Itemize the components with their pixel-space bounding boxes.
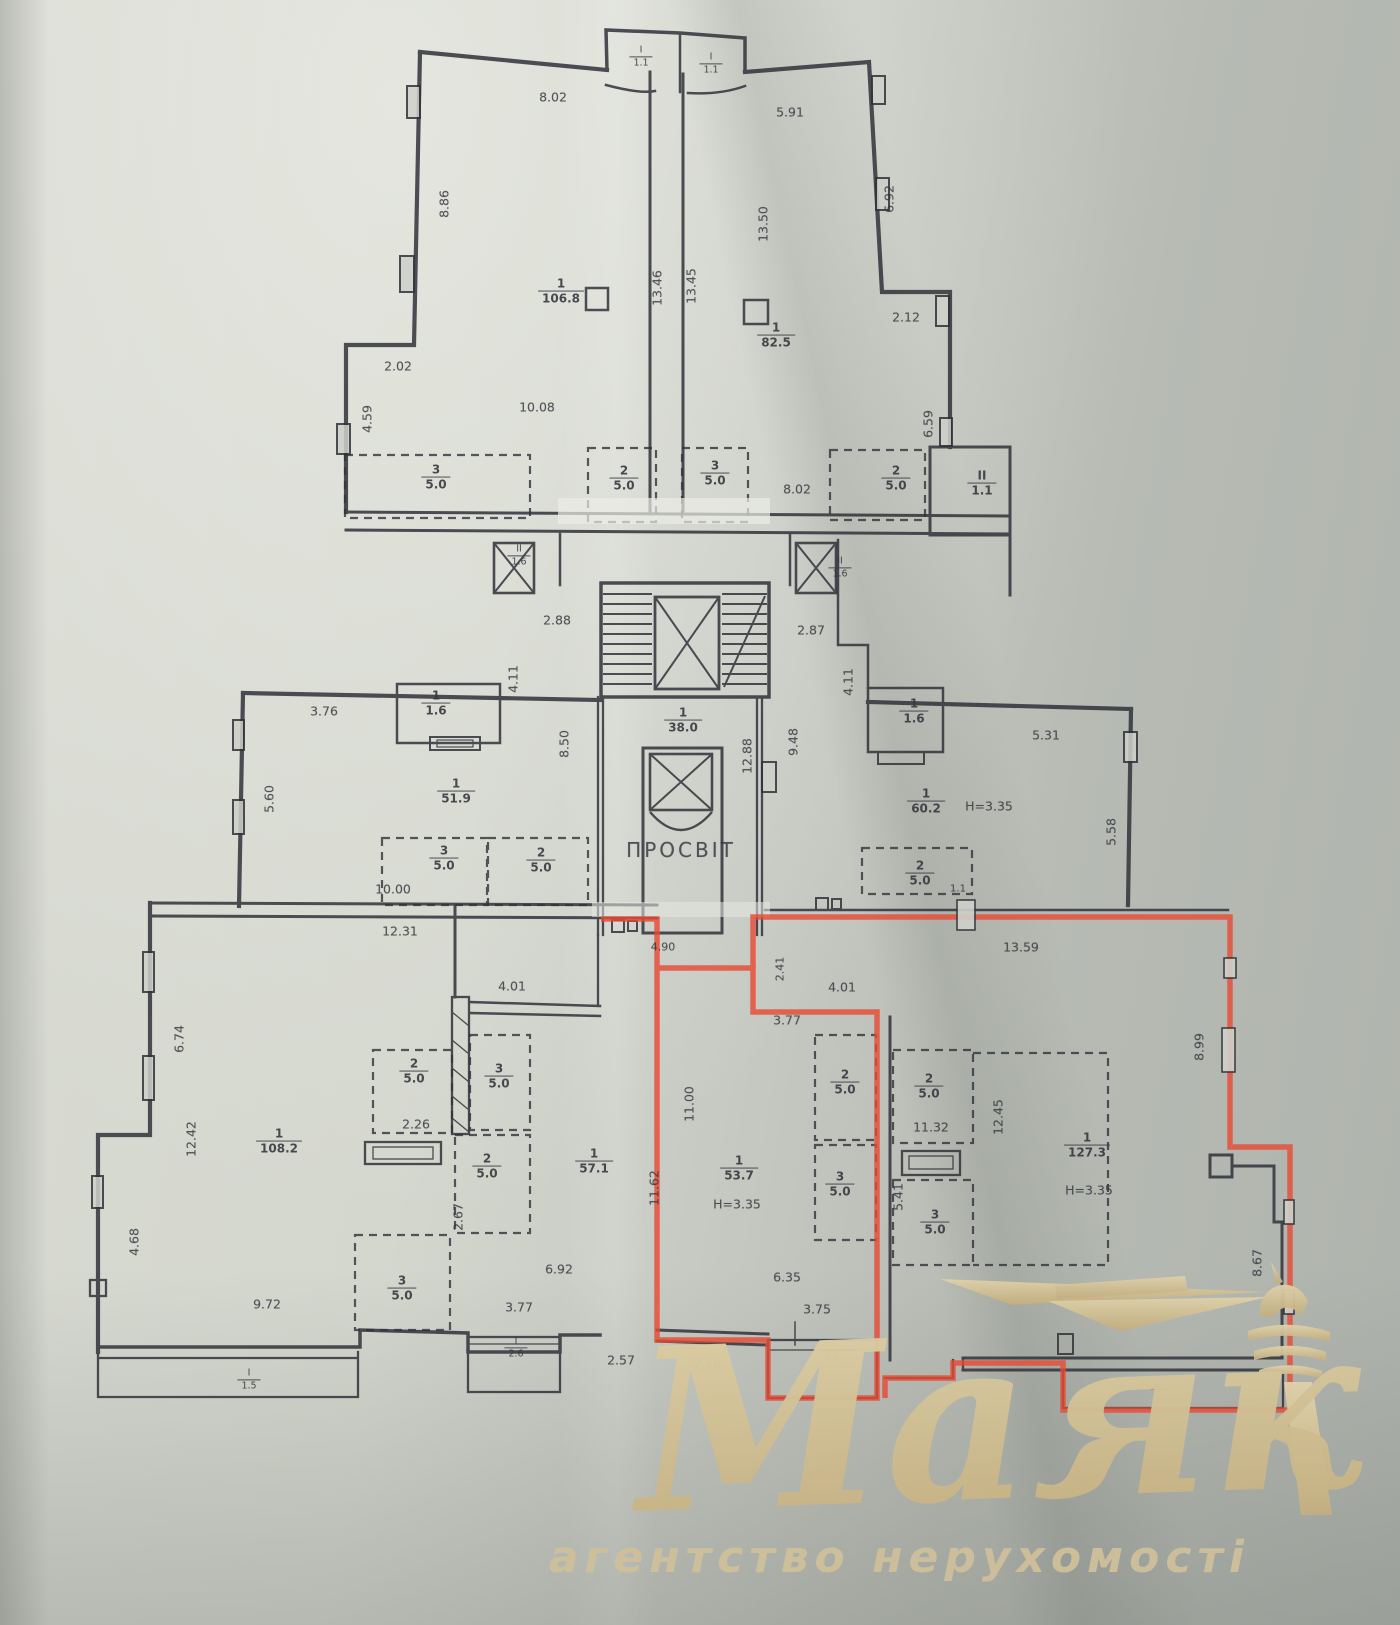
watermark-brand-name: Маяк bbox=[624, 1275, 1368, 1564]
screenshot-stage: 8.028.862.0210.084.5913.4613.455.9113.50… bbox=[0, 0, 1400, 1625]
watermark-tagline: агентство нерухомості bbox=[549, 1532, 1250, 1583]
watermark-logo: Маяк агентство нерухомості bbox=[0, 0, 1400, 1625]
